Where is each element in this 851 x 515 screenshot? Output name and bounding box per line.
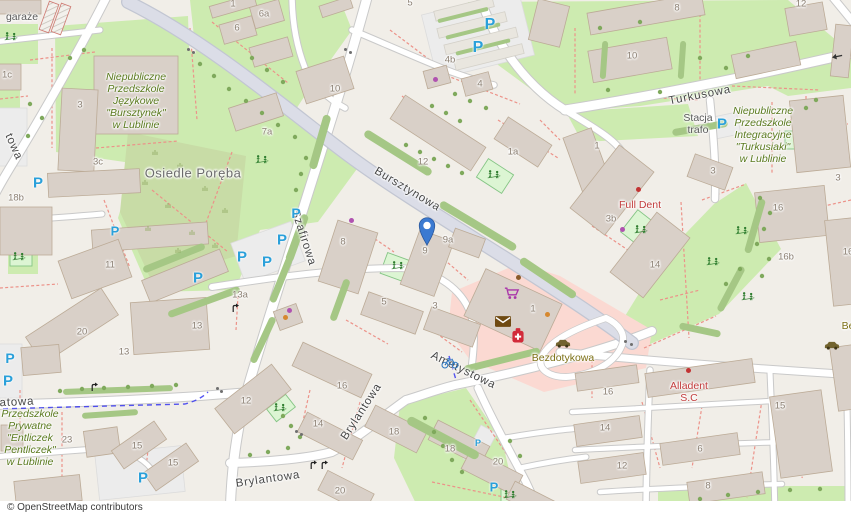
- attribution-bar: © OpenStreetMap contributors: [0, 501, 851, 515]
- map-marker[interactable]: [416, 215, 438, 246]
- pin-icon: [416, 215, 438, 246]
- attribution-text: © OpenStreetMap contributors: [7, 502, 143, 513]
- map-canvas[interactable]: [0, 0, 851, 515]
- map-viewport[interactable]: © OpenStreetMap contributors SzafirowaBu…: [0, 0, 851, 515]
